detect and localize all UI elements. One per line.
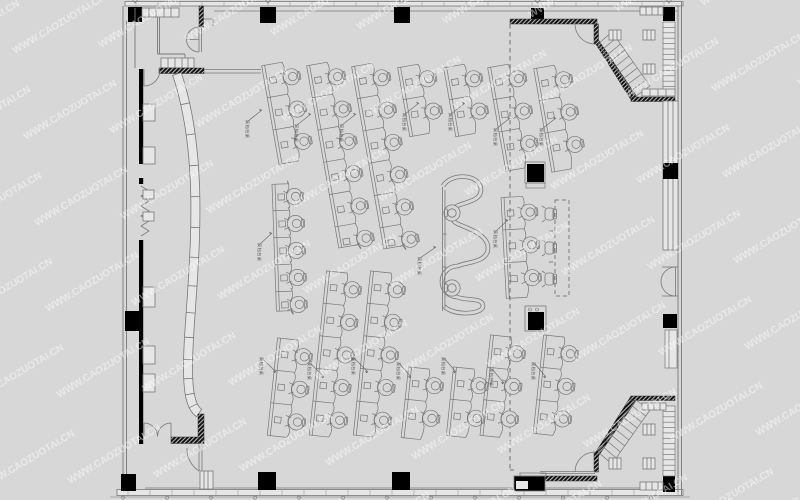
svg-text:高档台桌: 高档台桌	[256, 243, 263, 262]
svg-text:高档台桌: 高档台桌	[447, 113, 454, 132]
svg-text:高档台桌: 高档台桌	[306, 362, 313, 381]
svg-text:高档台桌: 高档台桌	[338, 124, 345, 143]
svg-text:高档台桌: 高档台桌	[530, 362, 537, 381]
svg-text:高档台桌: 高档台桌	[492, 230, 499, 249]
svg-text:高档台桌: 高档台桌	[401, 113, 408, 132]
svg-text:高档台桌: 高档台桌	[492, 128, 499, 147]
svg-text:高档台桌: 高档台桌	[244, 120, 251, 139]
svg-text:高档台桌: 高档台桌	[488, 368, 495, 387]
svg-text:高档台桌: 高档台桌	[293, 124, 300, 143]
svg-text:高档台桌: 高档台桌	[440, 357, 447, 376]
